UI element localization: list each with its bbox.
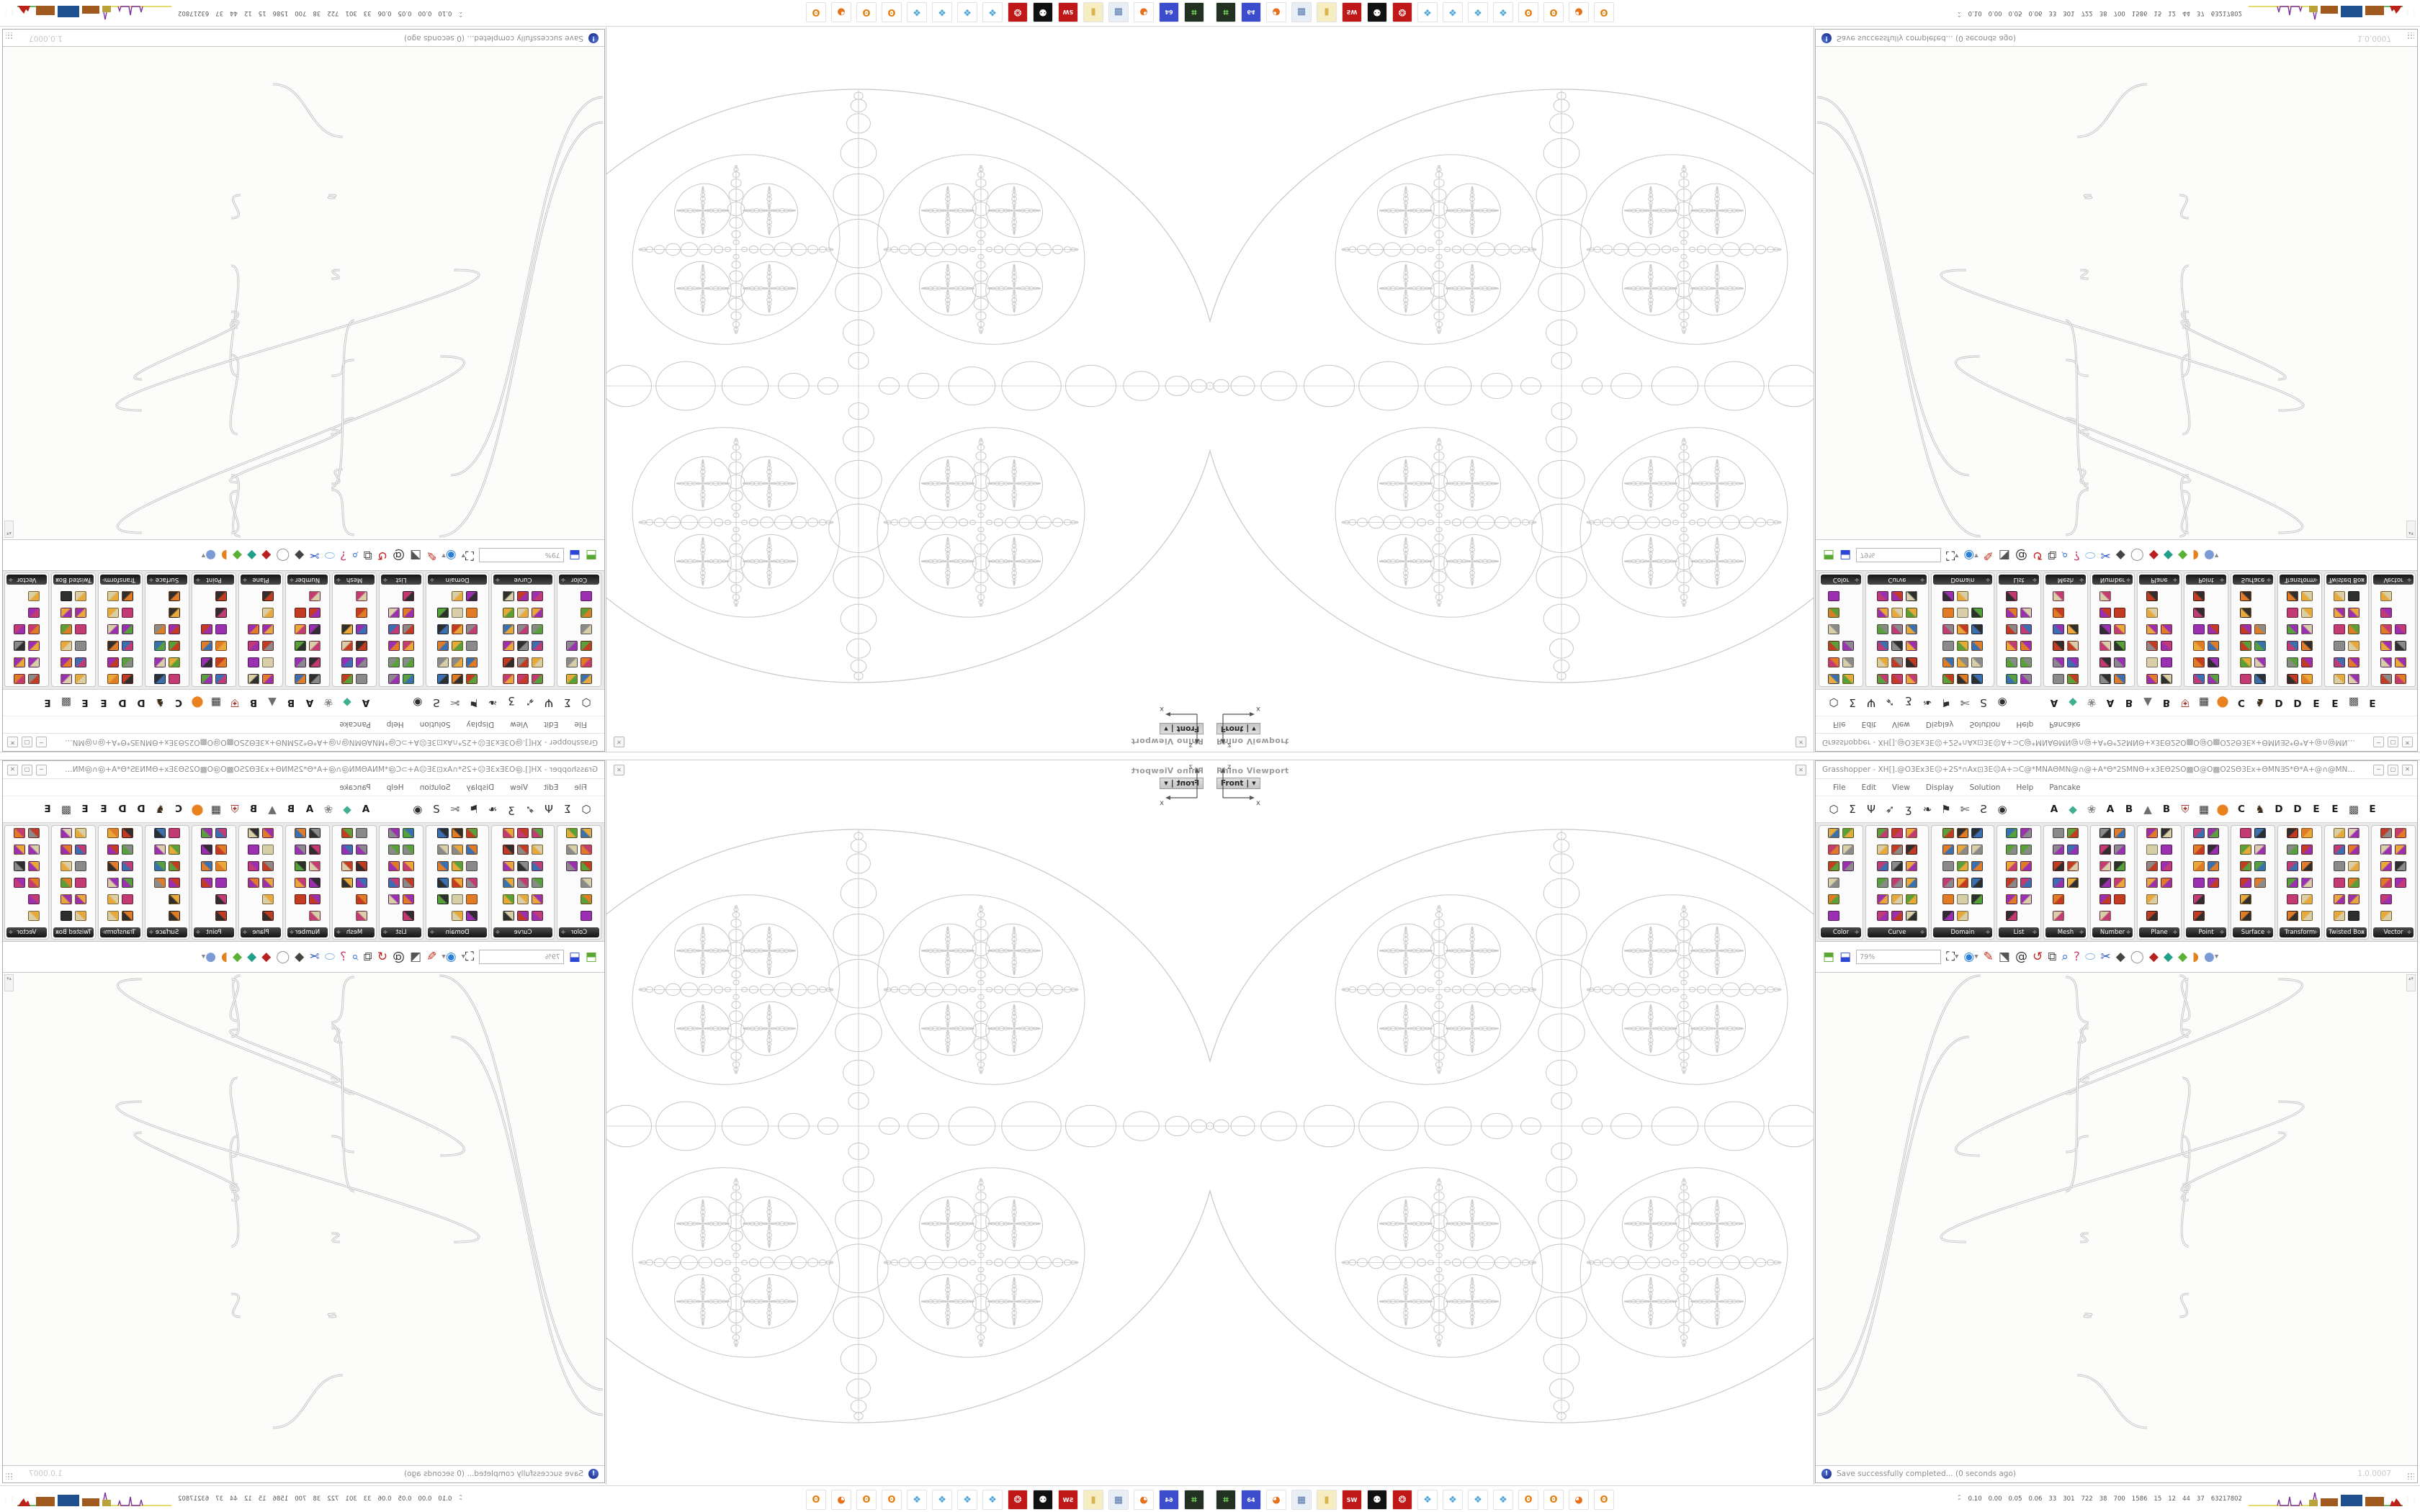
donut-icon[interactable]: ◯ [276, 951, 290, 963]
component-icon[interactable] [107, 590, 120, 602]
taskbar-app-firefox[interactable]: ◕ [1569, 1490, 1589, 1510]
component-icon[interactable] [2146, 673, 2159, 685]
component-icon[interactable] [2146, 844, 2159, 855]
component-icon[interactable] [565, 657, 578, 668]
component-icon[interactable] [107, 607, 120, 618]
help-icon[interactable]: ? [2074, 951, 2080, 963]
component-icon[interactable] [168, 640, 181, 652]
component-icon[interactable] [121, 894, 134, 905]
component-icon[interactable] [247, 827, 260, 839]
component-icon[interactable] [531, 640, 544, 652]
component-icon[interactable] [121, 827, 134, 839]
component-icon[interactable] [60, 590, 73, 602]
component-icon[interactable] [107, 894, 120, 905]
preview-eye-icon[interactable]: ◉▼ [442, 951, 456, 963]
curve-tab[interactable]: ʒ [502, 696, 521, 709]
component-icon[interactable] [451, 894, 464, 905]
wire-cut-icon[interactable]: ✂ [309, 549, 319, 562]
component-icon[interactable] [27, 910, 40, 922]
taskbar-app-blender[interactable]: ʘ [882, 2, 902, 22]
taskbar-app-file-manager[interactable]: ▮ [1317, 2, 1337, 22]
component-icon[interactable] [502, 640, 515, 652]
component-icon[interactable] [2347, 590, 2360, 602]
component-icon[interactable] [1956, 607, 1969, 618]
minimize-button[interactable]: ─ [36, 737, 47, 747]
component-icon[interactable] [580, 894, 593, 905]
taskbar-app-krita[interactable]: ❖ [1443, 2, 1463, 22]
component-icon[interactable] [261, 844, 274, 855]
component-icon[interactable] [261, 657, 274, 668]
component-icon[interactable] [1827, 910, 1840, 922]
curve-tab[interactable]: ʒ [1899, 803, 1918, 816]
half-donut-icon[interactable]: ◗ [221, 951, 228, 963]
component-icon[interactable] [1905, 910, 1918, 922]
component-icon[interactable] [2300, 657, 2313, 668]
palette-category-label[interactable]: Transform✛ [2280, 927, 2320, 937]
component-icon[interactable] [2394, 877, 2407, 888]
component-icon[interactable] [1942, 657, 1955, 668]
component-icon[interactable] [2160, 860, 2173, 872]
donut-icon[interactable]: ◯ [276, 549, 290, 562]
component-icon[interactable] [402, 860, 415, 872]
component-icon[interactable] [27, 673, 40, 685]
taskbar-app-floppy-64[interactable]: 64 [1241, 2, 1261, 22]
component-icon[interactable] [308, 910, 321, 922]
component-icon[interactable] [1905, 657, 1918, 668]
named-view-icon[interactable]: ⧉ [364, 549, 372, 562]
component-icon[interactable] [2052, 860, 2065, 872]
component-icon[interactable] [168, 827, 181, 839]
component-icon[interactable] [74, 860, 87, 872]
component-icon[interactable] [2052, 640, 2065, 652]
component-icon[interactable] [2020, 827, 2033, 839]
component-icon[interactable] [2239, 607, 2252, 618]
close-button[interactable]: ✕ [2402, 737, 2413, 747]
component-icon[interactable] [402, 590, 415, 602]
component-icon[interactable] [2066, 860, 2079, 872]
component-icon[interactable] [153, 844, 166, 855]
menu-solution[interactable]: Solution [1963, 782, 2008, 793]
component-icon[interactable] [2300, 910, 2313, 922]
component-icon[interactable] [565, 860, 578, 872]
component-icon[interactable] [2052, 827, 2065, 839]
plugin-tab-17[interactable]: E [2363, 697, 2382, 708]
component-icon[interactable] [1905, 590, 1918, 602]
component-icon[interactable] [2113, 894, 2126, 905]
component-icon[interactable] [2005, 624, 2018, 635]
component-icon[interactable] [168, 877, 181, 888]
taskbar-app-krita[interactable]: ❖ [982, 1490, 1003, 1510]
component-icon[interactable] [2333, 607, 2346, 618]
menu-file[interactable]: File [567, 719, 594, 731]
component-icon[interactable] [27, 590, 40, 602]
component-icon[interactable] [153, 657, 166, 668]
plugin-tab-8[interactable]: ▦ [2195, 803, 2213, 816]
menu-help[interactable]: Help [380, 719, 411, 731]
palette-category-label[interactable]: Surface✛ [147, 575, 187, 585]
component-icon[interactable] [60, 624, 73, 635]
component-icon[interactable] [74, 877, 87, 888]
component-icon[interactable] [261, 590, 274, 602]
component-icon[interactable] [2300, 860, 2313, 872]
component-icon[interactable] [121, 607, 134, 618]
plugin-tab-5[interactable]: ▲ [263, 803, 282, 816]
component-icon[interactable] [465, 894, 478, 905]
component-icon[interactable] [1827, 657, 1840, 668]
component-icon[interactable] [2020, 607, 2033, 618]
component-icon[interactable] [1891, 827, 1904, 839]
plugin-tab-12[interactable]: D [132, 697, 151, 708]
component-icon[interactable] [387, 877, 400, 888]
component-icon[interactable] [2160, 673, 2173, 685]
plugin-tab-11[interactable]: ♞ [151, 696, 169, 709]
plugin-tab-1[interactable]: ◆ [338, 696, 357, 709]
plugin-tab-9[interactable]: ⬤ [188, 696, 207, 709]
component-icon[interactable] [2333, 590, 2346, 602]
palette-category-label[interactable]: Point✛ [2186, 575, 2226, 585]
component-icon[interactable] [1942, 827, 1955, 839]
palette-category-label[interactable]: Domain✛ [428, 575, 487, 585]
gem-green-icon[interactable]: ◆ [2178, 951, 2187, 963]
component-icon[interactable] [1842, 673, 1855, 685]
surface-tab[interactable]: ❧ [1918, 803, 1937, 816]
component-icon[interactable] [2005, 844, 2018, 855]
component-icon[interactable] [436, 607, 449, 618]
taskbar-app-krita[interactable]: ❖ [1443, 1490, 1463, 1510]
plugin-tab-12[interactable]: D [132, 804, 151, 815]
component-icon[interactable] [200, 640, 213, 652]
component-icon[interactable] [1876, 877, 1889, 888]
zoom-input[interactable] [479, 950, 564, 964]
zoom-extents-icon[interactable]: ⛶▼ [1946, 951, 1958, 963]
component-icon[interactable] [13, 860, 26, 872]
component-icon[interactable] [1956, 910, 1969, 922]
menu-pancake[interactable]: Pancake [332, 782, 377, 793]
component-icon[interactable] [2300, 827, 2313, 839]
component-icon[interactable] [200, 877, 213, 888]
component-icon[interactable] [341, 877, 354, 888]
component-icon[interactable] [1956, 624, 1969, 635]
menu-display[interactable]: Display [459, 719, 501, 731]
maximize-button[interactable]: ▢ [2388, 765, 2398, 775]
menu-edit[interactable]: Edit [537, 782, 565, 793]
gem-red-icon[interactable]: ◆ [261, 549, 271, 562]
component-icon[interactable] [2160, 844, 2173, 855]
component-icon[interactable] [261, 827, 274, 839]
component-icon[interactable] [121, 657, 134, 668]
palette-category-label[interactable]: List✛ [381, 927, 421, 937]
drop-icon[interactable]: ◆ [295, 951, 304, 963]
component-icon[interactable] [2113, 844, 2126, 855]
component-icon[interactable] [387, 894, 400, 905]
component-icon[interactable] [74, 673, 87, 685]
component-icon[interactable] [2192, 657, 2205, 668]
component-icon[interactable] [2020, 640, 2033, 652]
component-icon[interactable] [355, 894, 368, 905]
component-icon[interactable] [168, 624, 181, 635]
taskbar-app-krita[interactable]: ❖ [1493, 2, 1513, 22]
component-icon[interactable] [451, 657, 464, 668]
component-icon[interactable] [2254, 860, 2267, 872]
menu-file[interactable]: File [567, 782, 594, 793]
component-icon[interactable] [355, 673, 368, 685]
taskbar-app-blender[interactable]: ʘ [1594, 1490, 1614, 1510]
component-icon[interactable] [531, 894, 544, 905]
taskbar-app-krita[interactable]: ❖ [907, 2, 927, 22]
plugin-tab-12[interactable]: D [2269, 804, 2288, 815]
component-icon[interactable] [1891, 657, 1904, 668]
component-icon[interactable] [580, 844, 593, 855]
canvas[interactable]: ▴▾ Construct MeshVerticesFacesColours▦Me… [1816, 973, 2417, 1466]
component-icon[interactable] [2394, 624, 2407, 635]
component-icon[interactable] [2099, 624, 2112, 635]
component-icon[interactable] [1827, 624, 1840, 635]
palette-category-label[interactable]: Point✛ [2186, 927, 2226, 937]
component-icon[interactable] [60, 877, 73, 888]
component-icon[interactable] [565, 640, 578, 652]
component-icon[interactable] [168, 844, 181, 855]
taskbar-app-zbrush[interactable]: ⚉ [1367, 1490, 1387, 1510]
balloon-icon[interactable]: ⬭ [325, 951, 336, 963]
component-icon[interactable] [1842, 827, 1855, 839]
plugin-tab-14[interactable]: E [2307, 697, 2326, 708]
component-icon[interactable] [2239, 590, 2252, 602]
component-icon[interactable] [2207, 827, 2220, 839]
component-icon[interactable] [1956, 860, 1969, 872]
palette-category-label[interactable]: Plane✛ [2139, 575, 2179, 585]
component-icon[interactable] [2207, 673, 2220, 685]
component-icon[interactable] [2192, 860, 2205, 872]
component-icon[interactable] [27, 640, 40, 652]
component-icon[interactable] [451, 910, 464, 922]
component-icon[interactable] [294, 877, 307, 888]
component-icon[interactable] [2394, 673, 2407, 685]
sketch-pen-icon[interactable]: ✎ [426, 549, 436, 562]
plugin-tab-8[interactable]: ▦ [207, 696, 225, 709]
palette-category-label[interactable]: Number✛ [287, 927, 328, 937]
component-icon[interactable] [451, 877, 464, 888]
component-icon[interactable] [308, 827, 321, 839]
component-icon[interactable] [261, 860, 274, 872]
component-icon[interactable] [516, 860, 529, 872]
component-icon[interactable] [451, 860, 464, 872]
save-file-icon[interactable]: ⬓ [1839, 951, 1851, 963]
plugin-tab-16[interactable]: ▩ [2344, 696, 2363, 709]
plugin-tab-7[interactable]: ⛨ [225, 803, 244, 816]
component-icon[interactable] [341, 657, 354, 668]
palette-category-label[interactable]: Surface✛ [2233, 927, 2273, 937]
plugin-tab-6[interactable]: B [244, 697, 263, 708]
plugin-tab-2[interactable]: ❀ [2082, 696, 2101, 709]
display-tab[interactable]: ◉ [1993, 696, 2012, 709]
menu-pancake[interactable]: Pancake [2042, 719, 2087, 731]
resize-grip[interactable] [6, 32, 13, 40]
menu-view[interactable]: View [503, 719, 535, 731]
component-icon[interactable] [516, 607, 529, 618]
taskbar-app-solidworks-2020[interactable]: SW [1342, 1490, 1362, 1510]
component-icon[interactable] [465, 910, 478, 922]
close-button[interactable]: ✕ [2402, 765, 2413, 775]
component-icon[interactable] [580, 640, 593, 652]
component-icon[interactable] [200, 827, 213, 839]
component-icon[interactable] [2239, 827, 2252, 839]
component-icon[interactable] [168, 910, 181, 922]
gumball-icon[interactable]: ⬔ [1999, 951, 2010, 963]
taskbar-app-blender[interactable]: ʘ [1518, 2, 1538, 22]
remote-panel-icon[interactable]: @ [393, 549, 405, 562]
palette-category-label[interactable]: List✛ [1999, 575, 2039, 585]
component-icon[interactable] [531, 910, 544, 922]
plugin-tab-10[interactable]: C [2232, 804, 2251, 815]
component-icon[interactable] [2113, 624, 2126, 635]
component-icon[interactable] [436, 844, 449, 855]
palette-category-label[interactable]: Domain✛ [1933, 575, 1992, 585]
component-icon[interactable] [60, 827, 73, 839]
component-icon[interactable] [516, 673, 529, 685]
component-icon[interactable] [308, 624, 321, 635]
component-icon[interactable] [308, 844, 321, 855]
component-icon[interactable] [1876, 657, 1889, 668]
drop-icon[interactable]: ◆ [2116, 549, 2125, 562]
plugin-tab-11[interactable]: ♞ [2251, 803, 2269, 816]
component-icon[interactable] [1876, 624, 1889, 635]
component-icon[interactable] [1891, 894, 1904, 905]
component-icon[interactable] [531, 673, 544, 685]
menu-help[interactable]: Help [2009, 782, 2040, 793]
component-icon[interactable] [436, 827, 449, 839]
component-icon[interactable] [2286, 607, 2299, 618]
menu-file[interactable]: File [1826, 782, 1853, 793]
component-icon[interactable] [2239, 910, 2252, 922]
gha-loader-icon[interactable]: ↺ [2033, 951, 2043, 963]
component-icon[interactable] [2207, 877, 2220, 888]
component-icon[interactable] [294, 827, 307, 839]
component-icon[interactable] [2005, 910, 2018, 922]
component-icon[interactable] [215, 860, 228, 872]
palette-category-label[interactable]: Transform✛ [2280, 575, 2320, 585]
donut-icon[interactable]: ◯ [2130, 549, 2144, 562]
component-icon[interactable] [355, 640, 368, 652]
component-icon[interactable] [1971, 624, 1984, 635]
sketch-pen-icon[interactable]: ✎ [1984, 549, 1994, 562]
component-icon[interactable] [1842, 640, 1855, 652]
viewport-close-button[interactable]: ✕ [614, 765, 624, 775]
plugin-tab-16[interactable]: ▩ [57, 803, 76, 816]
palette-category-label[interactable]: Plane✛ [241, 575, 281, 585]
component-icon[interactable] [2005, 860, 2018, 872]
drop-icon[interactable]: ◆ [295, 549, 304, 562]
taskbar-app-firefox[interactable]: ◕ [831, 2, 851, 22]
mesh-tab[interactable]: ⚑ [1937, 696, 1955, 709]
grasshopper-titlebar[interactable]: Grasshopper - XH[].@O3Ex3E☹+2S*∩Ax⊡3E☹A+… [3, 733, 604, 751]
plugin-tab-16[interactable]: ▩ [57, 696, 76, 709]
component-icon[interactable] [436, 894, 449, 905]
component-icon[interactable] [2113, 827, 2126, 839]
plugin-tab-11[interactable]: ♞ [151, 803, 169, 816]
plugin-tab-14[interactable]: E [2307, 804, 2326, 815]
plugin-tab-9[interactable]: ⬤ [188, 803, 207, 816]
component-icon[interactable] [502, 844, 515, 855]
component-icon[interactable] [2254, 827, 2267, 839]
component-icon[interactable] [1905, 624, 1918, 635]
canvas[interactable]: ▴▾ Construct MeshVerticesFacesColours▦Me… [1816, 46, 2417, 539]
component-icon[interactable] [2005, 877, 2018, 888]
balloon-icon[interactable]: ⬭ [2085, 549, 2096, 562]
component-icon[interactable] [107, 844, 120, 855]
menu-edit[interactable]: Edit [537, 719, 565, 731]
component-icon[interactable] [451, 673, 464, 685]
plugin-tab-1[interactable]: ◆ [2063, 696, 2082, 709]
component-icon[interactable] [2146, 894, 2159, 905]
component-icon[interactable] [2005, 657, 2018, 668]
component-icon[interactable] [2020, 657, 2033, 668]
help-icon[interactable]: ? [340, 549, 346, 562]
component-icon[interactable] [1971, 877, 1984, 888]
component-icon[interactable] [2300, 640, 2313, 652]
component-icon[interactable] [1891, 844, 1904, 855]
component-icon[interactable] [13, 640, 26, 652]
component-icon[interactable] [1971, 673, 1984, 685]
component-icon[interactable] [1942, 910, 1955, 922]
component-icon[interactable] [27, 827, 40, 839]
taskbar-app-blender[interactable]: ʘ [1594, 2, 1614, 22]
maths-tab[interactable]: Σ [558, 696, 577, 709]
plugin-tab-7[interactable]: ⛨ [225, 696, 244, 709]
component-icon[interactable] [2020, 860, 2033, 872]
component-icon[interactable] [1876, 844, 1889, 855]
component-icon[interactable] [1956, 657, 1969, 668]
component-icon[interactable] [2394, 827, 2407, 839]
component-icon[interactable] [341, 860, 354, 872]
component-icon[interactable] [2160, 640, 2173, 652]
component-icon[interactable] [502, 860, 515, 872]
component-icon[interactable] [1942, 844, 1955, 855]
component-icon[interactable] [2380, 624, 2393, 635]
component-icon[interactable] [2052, 590, 2065, 602]
component-icon[interactable] [436, 624, 449, 635]
component-icon[interactable] [1891, 624, 1904, 635]
palette-category-label[interactable]: Color✛ [559, 927, 599, 937]
component-icon[interactable] [502, 607, 515, 618]
component-icon[interactable] [341, 844, 354, 855]
palette-category-label[interactable]: Surface✛ [2233, 575, 2273, 585]
component-icon[interactable] [436, 657, 449, 668]
gem-green-icon[interactable]: ◆ [233, 951, 242, 963]
component-icon[interactable] [2099, 894, 2112, 905]
component-icon[interactable] [200, 624, 213, 635]
component-icon[interactable] [402, 640, 415, 652]
params-tab[interactable]: ⬡ [1824, 803, 1843, 816]
viewport-close-button[interactable]: ✕ [1796, 737, 1806, 747]
canvas-scroll-arrows[interactable]: ▴▾ [2406, 974, 2416, 991]
taskbar-app-zbrush[interactable]: ⚉ [1033, 2, 1053, 22]
component-icon[interactable] [2052, 673, 2065, 685]
component-icon[interactable] [27, 844, 40, 855]
component-icon[interactable] [2286, 910, 2299, 922]
palette-category-label[interactable]: Mesh✛ [334, 575, 375, 585]
component-icon[interactable] [2380, 894, 2393, 905]
help-icon[interactable]: ? [340, 951, 346, 963]
finder-icon[interactable]: ⌕ [351, 549, 359, 562]
component-icon[interactable] [13, 877, 26, 888]
component-icon[interactable] [2113, 657, 2126, 668]
component-icon[interactable] [107, 827, 120, 839]
component-icon[interactable] [1942, 590, 1955, 602]
component-icon[interactable] [74, 607, 87, 618]
taskbar-app-file-manager[interactable]: ▮ [1083, 1490, 1103, 1510]
component-icon[interactable] [261, 624, 274, 635]
gem-red-icon[interactable]: ◆ [2149, 951, 2159, 963]
